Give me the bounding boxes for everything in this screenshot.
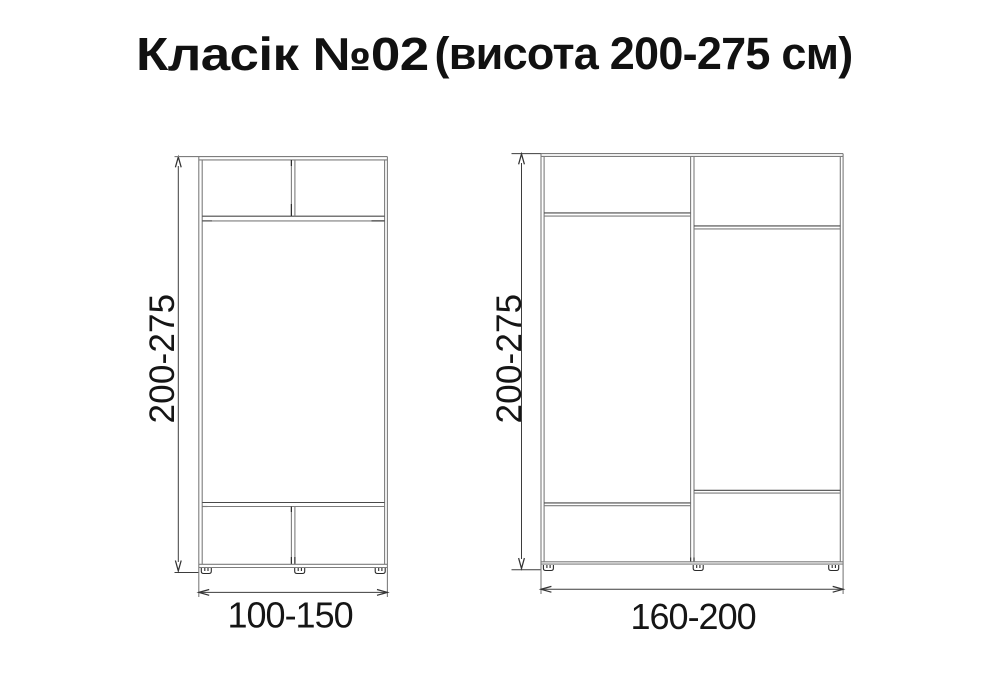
svg-text:100-150: 100-150 <box>228 595 353 636</box>
svg-text:160-200: 160-200 <box>631 596 756 637</box>
svg-text:200-275: 200-275 <box>143 294 182 424</box>
svg-text:200-275: 200-275 <box>490 294 529 424</box>
